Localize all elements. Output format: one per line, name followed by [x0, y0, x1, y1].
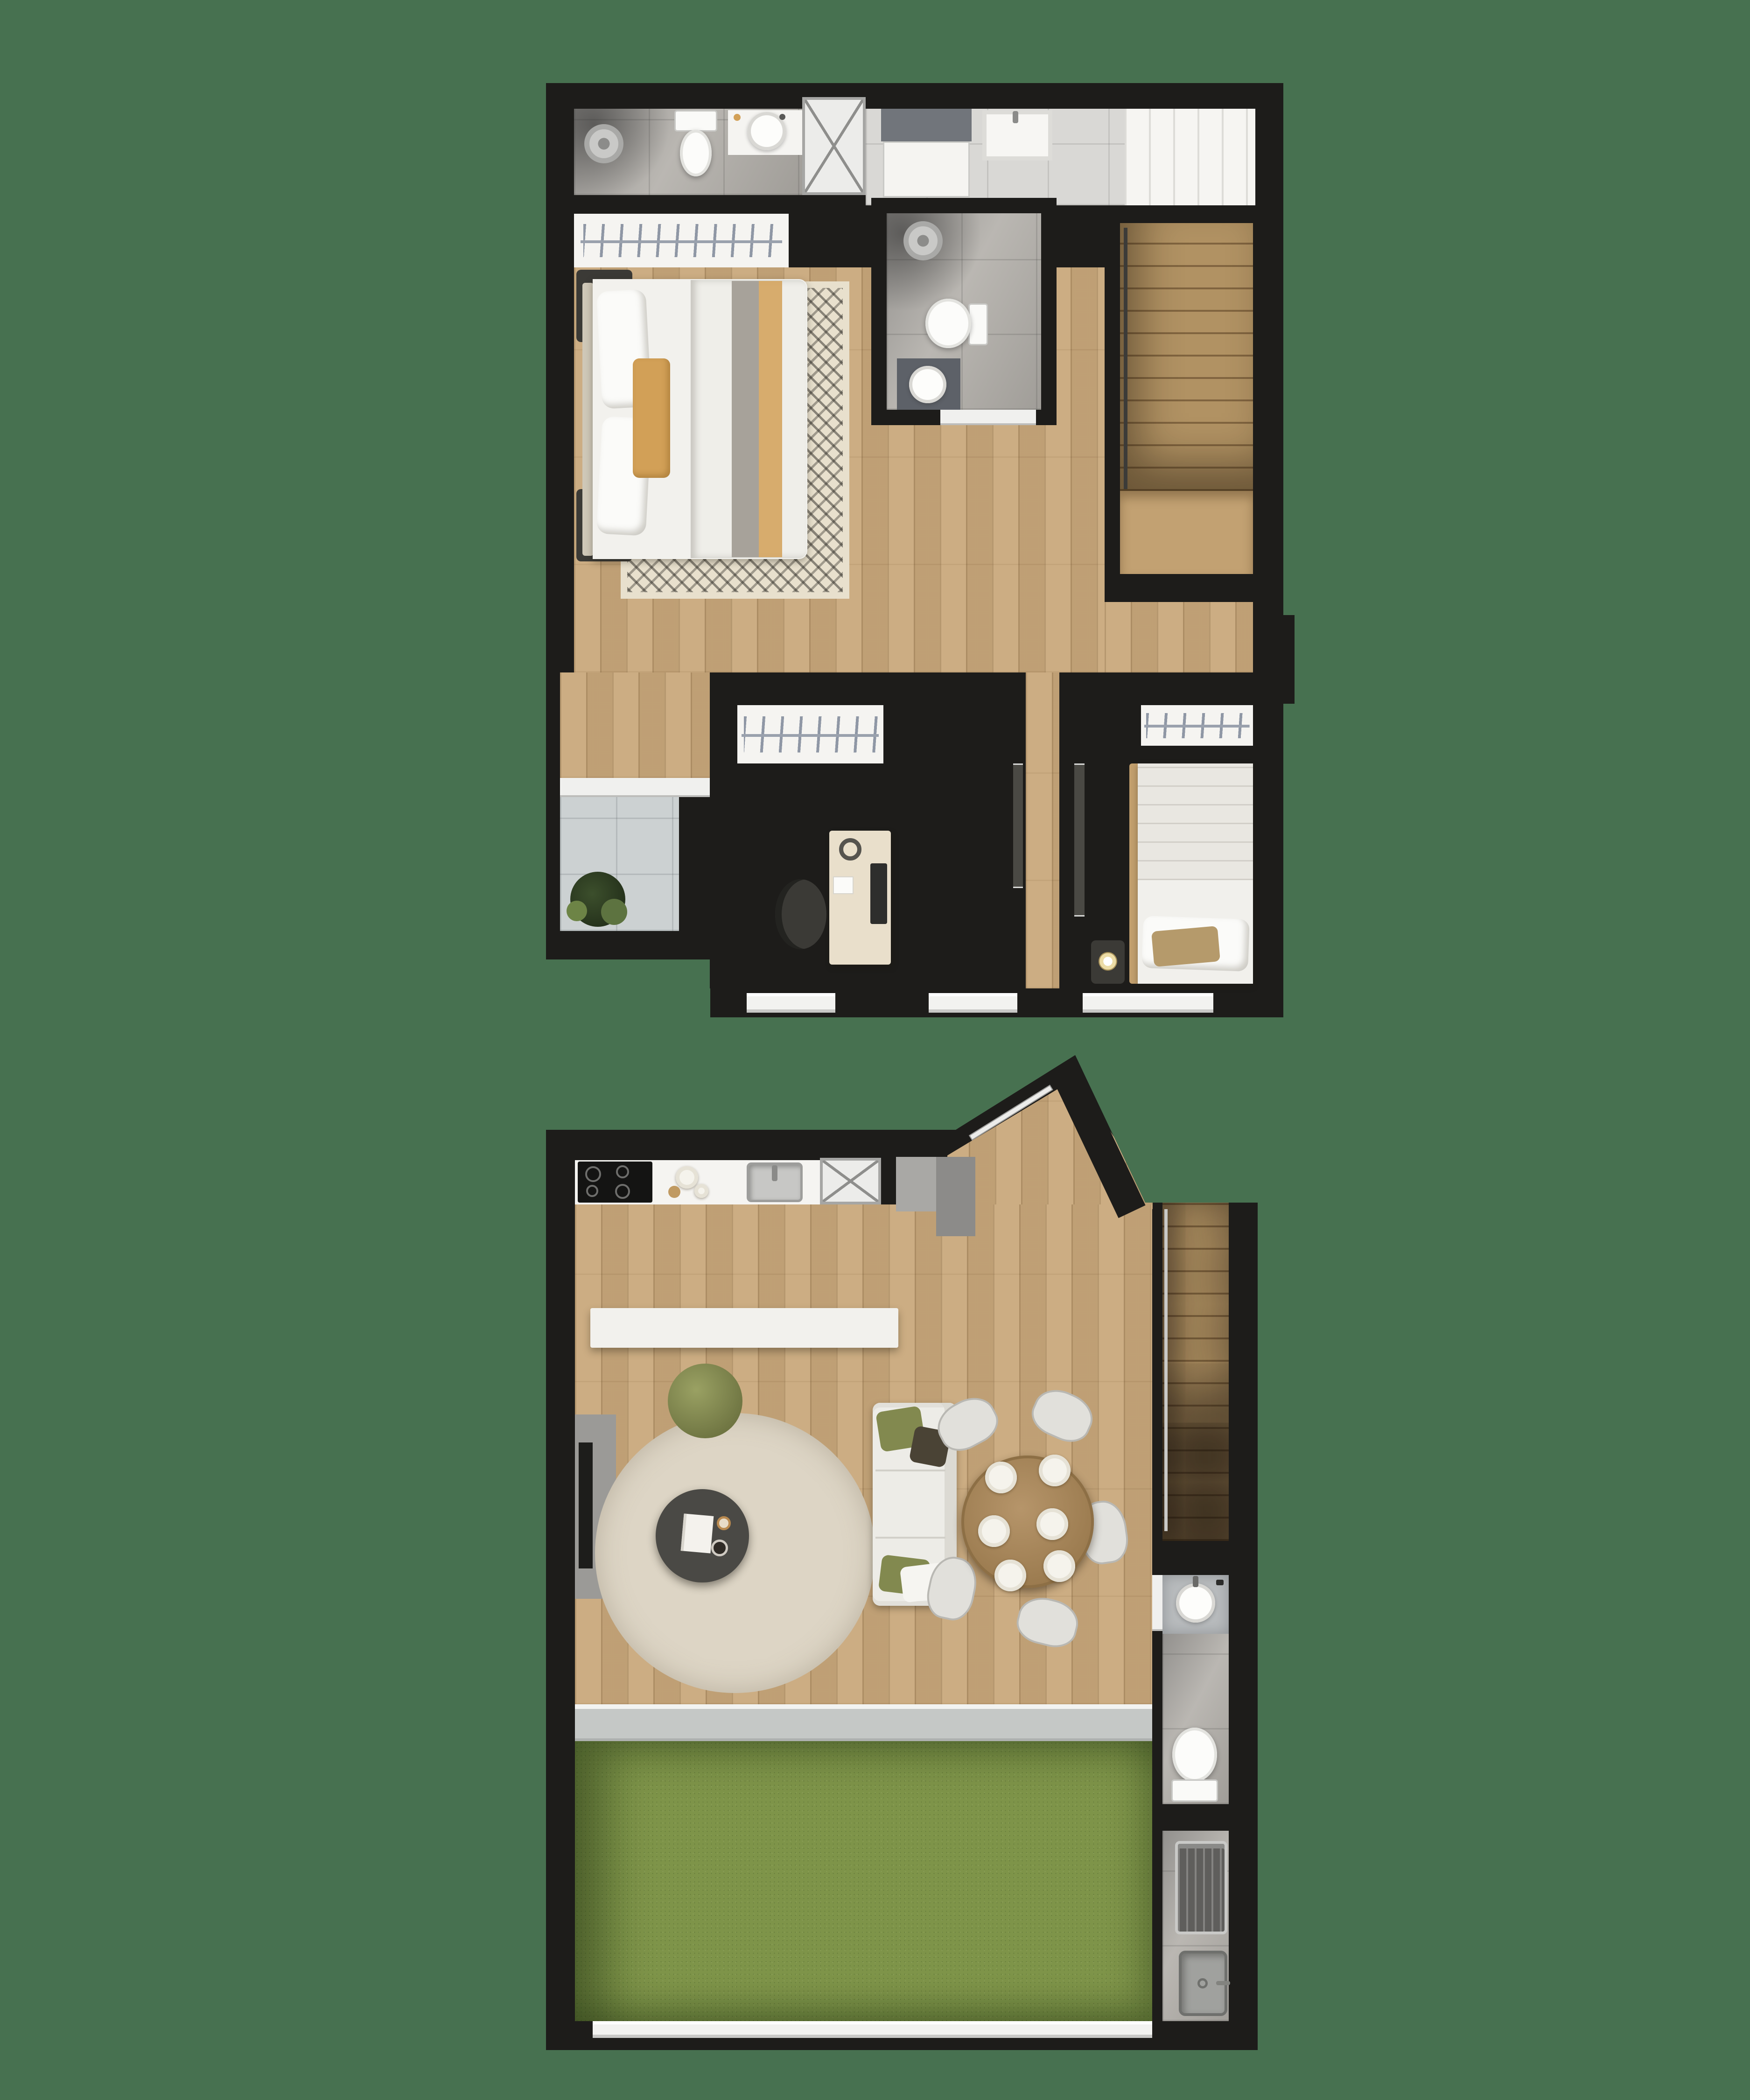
handrail — [1124, 228, 1127, 489]
plate — [1036, 1508, 1068, 1540]
notepad — [833, 876, 854, 894]
linen-closet — [1125, 109, 1255, 205]
tub-faucet-icon — [1013, 111, 1018, 123]
window — [1083, 993, 1213, 1013]
gray-cabinet — [896, 1157, 936, 1211]
cup — [711, 1540, 728, 1556]
washing-machine — [1175, 1841, 1227, 1934]
lawn — [575, 1741, 1152, 2021]
plate — [985, 1462, 1017, 1493]
toilet-tank — [674, 110, 717, 132]
headphones-icon — [839, 838, 861, 861]
plate — [978, 1515, 1010, 1547]
toilet-icon — [680, 130, 712, 176]
faucet-icon — [772, 1165, 777, 1181]
wall-bump — [1282, 615, 1295, 704]
pouf — [668, 1364, 742, 1438]
toilet-icon — [925, 299, 971, 348]
shower-box — [802, 97, 866, 195]
pocket-door — [1013, 763, 1023, 888]
burner-icon — [616, 1165, 629, 1178]
soap-dish-icon — [734, 114, 741, 121]
throw-tan — [759, 281, 782, 557]
shower-box — [820, 1158, 881, 1204]
handrail — [1164, 1209, 1168, 1531]
burner-icon — [586, 1185, 598, 1197]
faucet-icon — [1193, 1576, 1198, 1587]
toilet-tank — [1171, 1779, 1218, 1802]
floorplan-page: { "document": { "type": "architectural-f… — [0, 0, 1750, 2100]
plate — [994, 1560, 1026, 1591]
toilet-tank — [968, 303, 988, 345]
stairs-lower — [1162, 1203, 1229, 1541]
plant-leaf — [567, 901, 587, 921]
bedroom2-top-wall — [1059, 672, 1253, 700]
window — [929, 993, 1017, 1013]
stair-landing-hall — [1105, 602, 1253, 672]
sofa-seam — [875, 1537, 945, 1539]
tv-icon — [579, 1442, 593, 1568]
bedroom2-wardrobe — [1141, 705, 1253, 746]
appliance — [883, 141, 970, 197]
plate — [1043, 1550, 1075, 1582]
upper-floor-plan — [546, 83, 1283, 1017]
bathroom-door — [1152, 1575, 1162, 1631]
office-chair — [775, 879, 826, 949]
ground-floor-plan — [546, 1055, 1258, 2050]
vanity-basin — [909, 366, 946, 403]
office-top-wall — [710, 672, 1026, 700]
terrace-sliding-door — [560, 778, 710, 797]
plate — [1039, 1455, 1071, 1486]
bedroom-terrace-strip — [560, 672, 710, 778]
island-counter — [590, 1308, 898, 1348]
plant-leaf — [601, 899, 627, 925]
shower-head-icon — [584, 124, 623, 163]
duvet2 — [1138, 763, 1253, 880]
office-wardrobe — [737, 705, 883, 763]
burner-icon — [585, 1166, 601, 1182]
book — [681, 1513, 714, 1553]
gray-cabinet-tall — [936, 1157, 975, 1236]
bathroom-door — [940, 410, 1036, 425]
burner-icon — [615, 1184, 630, 1199]
window — [747, 993, 835, 1013]
faucet-icon — [779, 114, 785, 120]
stairs-upper — [1120, 223, 1253, 491]
corridor-east — [1026, 672, 1059, 988]
bowl — [668, 1186, 680, 1198]
accent-cushion — [1151, 926, 1220, 967]
yard-glass-rail — [593, 2021, 1152, 2038]
plate — [676, 1166, 698, 1189]
plate — [694, 1184, 708, 1198]
shower-head-icon — [903, 221, 943, 260]
throw-gray — [732, 281, 759, 557]
monitor-icon — [870, 863, 887, 924]
toilet-icon — [1172, 1728, 1217, 1782]
bed-headboard — [582, 283, 594, 556]
stairs-landing — [1120, 491, 1253, 574]
pocket-door — [1074, 763, 1085, 917]
wall-cabinet — [881, 109, 972, 141]
sink-drain-icon — [1197, 1978, 1208, 1988]
master-wardrobe — [574, 214, 789, 267]
vanity-basin — [1176, 1583, 1215, 1623]
plan-cutout — [546, 959, 710, 1017]
patio-threshold — [575, 1704, 1152, 1741]
soap-dish-icon — [1216, 1580, 1224, 1585]
faucet-icon — [1216, 1981, 1230, 1985]
sofa-seam — [875, 1470, 945, 1471]
lamp-icon — [1099, 952, 1117, 971]
cup — [717, 1516, 731, 1530]
office-left-wall — [710, 672, 725, 988]
accent-cushion — [633, 358, 670, 478]
